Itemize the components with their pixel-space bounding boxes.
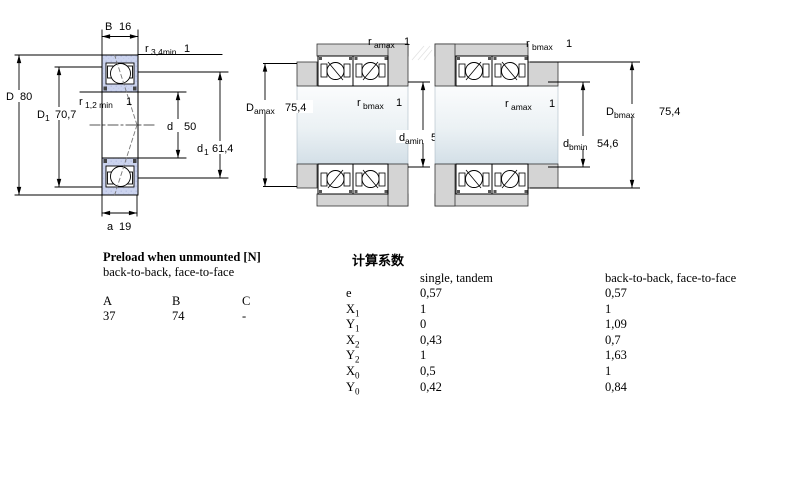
dim-damin xyxy=(408,82,430,167)
ball xyxy=(111,167,131,187)
label-Damax-sub: amax xyxy=(254,106,276,116)
label-rbmax-value: 1 xyxy=(566,38,572,50)
label-dbmin-value: 54,6 xyxy=(597,138,618,150)
dim-Damax xyxy=(263,64,297,187)
label-rbmax-sub: bmax xyxy=(363,101,385,111)
preload-table: Preload when unmounted [N] back-to-back,… xyxy=(103,246,333,336)
label-ramax-value: 1 xyxy=(404,36,410,48)
label-Dbmax-value: 75,4 xyxy=(659,106,680,118)
dim-label-d-sym: d xyxy=(167,121,173,133)
factor-row-e: e 0,57 0,57 xyxy=(346,286,786,302)
dim-label-D1-sub: 1 xyxy=(45,113,50,123)
shaft xyxy=(435,86,558,164)
paired-bearings-bottom xyxy=(456,164,528,194)
dim-label-a-value: 19 xyxy=(119,221,131,233)
preload-table-title: Preload when unmounted [N] xyxy=(103,250,261,265)
dim-label-d1-value: 61,4 xyxy=(212,143,233,155)
dim-label-r12-value: 1 xyxy=(126,96,132,108)
factor-row-X1: X1 1 1 xyxy=(346,302,786,318)
single-bearing-figure: B 16 r 3,4min 1 D 80 D 1 70,7 r 1,2 min … xyxy=(3,21,241,233)
label-Damax-sym: D xyxy=(246,102,254,114)
label-rbmax-sub: bmax xyxy=(532,42,554,52)
dim-label-r12-sub: 1,2 min xyxy=(85,100,113,110)
factors-col-paired: back-to-back, face-to-face xyxy=(605,271,736,286)
label-ramax-sym: r xyxy=(368,36,372,48)
paired-bearings-top xyxy=(318,56,388,86)
dim-label-D1-sym: D xyxy=(37,109,45,121)
dim-label-B-value: 16 xyxy=(119,21,131,33)
preload-col-C: C xyxy=(242,294,250,309)
factors-rows: e 0,57 0,57 X1 1 1 Y1 0 1,09 X2 0,43 0,7… xyxy=(346,286,786,395)
dim-label-d-value: 50 xyxy=(184,121,196,133)
paired-bearings-top xyxy=(456,56,528,86)
dim-D xyxy=(15,55,102,195)
dim-label-D-sym: D xyxy=(6,91,14,103)
label-ramax-sub: amax xyxy=(374,40,396,50)
dim-label-d1-sub: 1 xyxy=(204,147,209,157)
label-rbmax-sym: r xyxy=(357,97,361,109)
factors-table: 计算系数 single, tandem back-to-back, face-t… xyxy=(346,246,786,406)
dim-label-r34-sym: r xyxy=(145,43,149,55)
label-ramax-value: 1 xyxy=(549,98,555,110)
factor-row-X0: X0 0,5 1 xyxy=(346,364,786,380)
factor-row-Y1: Y1 0 1,09 xyxy=(346,317,786,333)
preload-col-A: A xyxy=(103,294,112,309)
paired-bearings-bottom xyxy=(318,164,388,194)
factors-table-title: 计算系数 xyxy=(352,250,404,269)
bearing-section-top xyxy=(102,55,138,92)
label-Dbmax-sym: D xyxy=(606,106,614,118)
ball xyxy=(111,64,131,84)
factor-row-Y0: Y0 0,42 0,84 xyxy=(346,380,786,396)
gap-hatch xyxy=(412,46,432,60)
dim-label-D-value: 80 xyxy=(20,91,32,103)
dim-label-D1-value: 70,7 xyxy=(55,109,76,121)
label-Dbmax-sub: bmax xyxy=(614,110,636,120)
dim-a xyxy=(102,196,137,216)
label-ramax-sym: r xyxy=(505,98,509,110)
factor-row-Y2: Y2 1 1,63 xyxy=(346,348,786,364)
label-Damax-value: 75,4 xyxy=(285,102,306,114)
bearing-section-bottom xyxy=(102,158,138,195)
preload-value-C: - xyxy=(242,309,246,324)
label-rbmax-sym: r xyxy=(526,38,530,50)
dim-label-a-sym: a xyxy=(107,221,114,233)
dim-label-r12-sym: r xyxy=(79,96,83,108)
dim-B xyxy=(102,30,138,54)
factors-col-single-tandem: single, tandem xyxy=(420,271,493,286)
factor-row-X2: X2 0,43 0,7 xyxy=(346,333,786,349)
preload-table-subtitle: back-to-back, face-to-face xyxy=(103,265,234,280)
face-to-face-figure: r bmax 1 r amax 1 d bmin 54,6 D bmax 75,… xyxy=(435,38,689,206)
preload-value-A: 37 xyxy=(103,309,116,324)
dim-label-d1-sym: d xyxy=(197,143,203,155)
preload-value-B: 74 xyxy=(172,309,185,324)
dim-D1 xyxy=(55,67,102,187)
preload-col-B: B xyxy=(172,294,180,309)
back-to-back-figure: r amax 1 D amax 75,4 r bmax 1 d amin 54,… xyxy=(243,36,456,206)
shaft xyxy=(297,86,408,164)
dim-label-r34-sub: 3,4min xyxy=(151,47,177,57)
label-rbmax-value: 1 xyxy=(396,97,402,109)
label-ramax-sub: amax xyxy=(511,102,533,112)
label-damin-sub: amin xyxy=(405,136,424,146)
dim-label-r34-value: 1 xyxy=(184,43,190,55)
datasheet-page: B 16 r 3,4min 1 D 80 D 1 70,7 r 1,2 min … xyxy=(0,0,800,500)
label-dbmin-sub: bmin xyxy=(569,142,588,152)
bearing-drawings: B 16 r 3,4min 1 D 80 D 1 70,7 r 1,2 min … xyxy=(0,0,800,244)
dim-label-B-sym: B xyxy=(105,21,112,33)
